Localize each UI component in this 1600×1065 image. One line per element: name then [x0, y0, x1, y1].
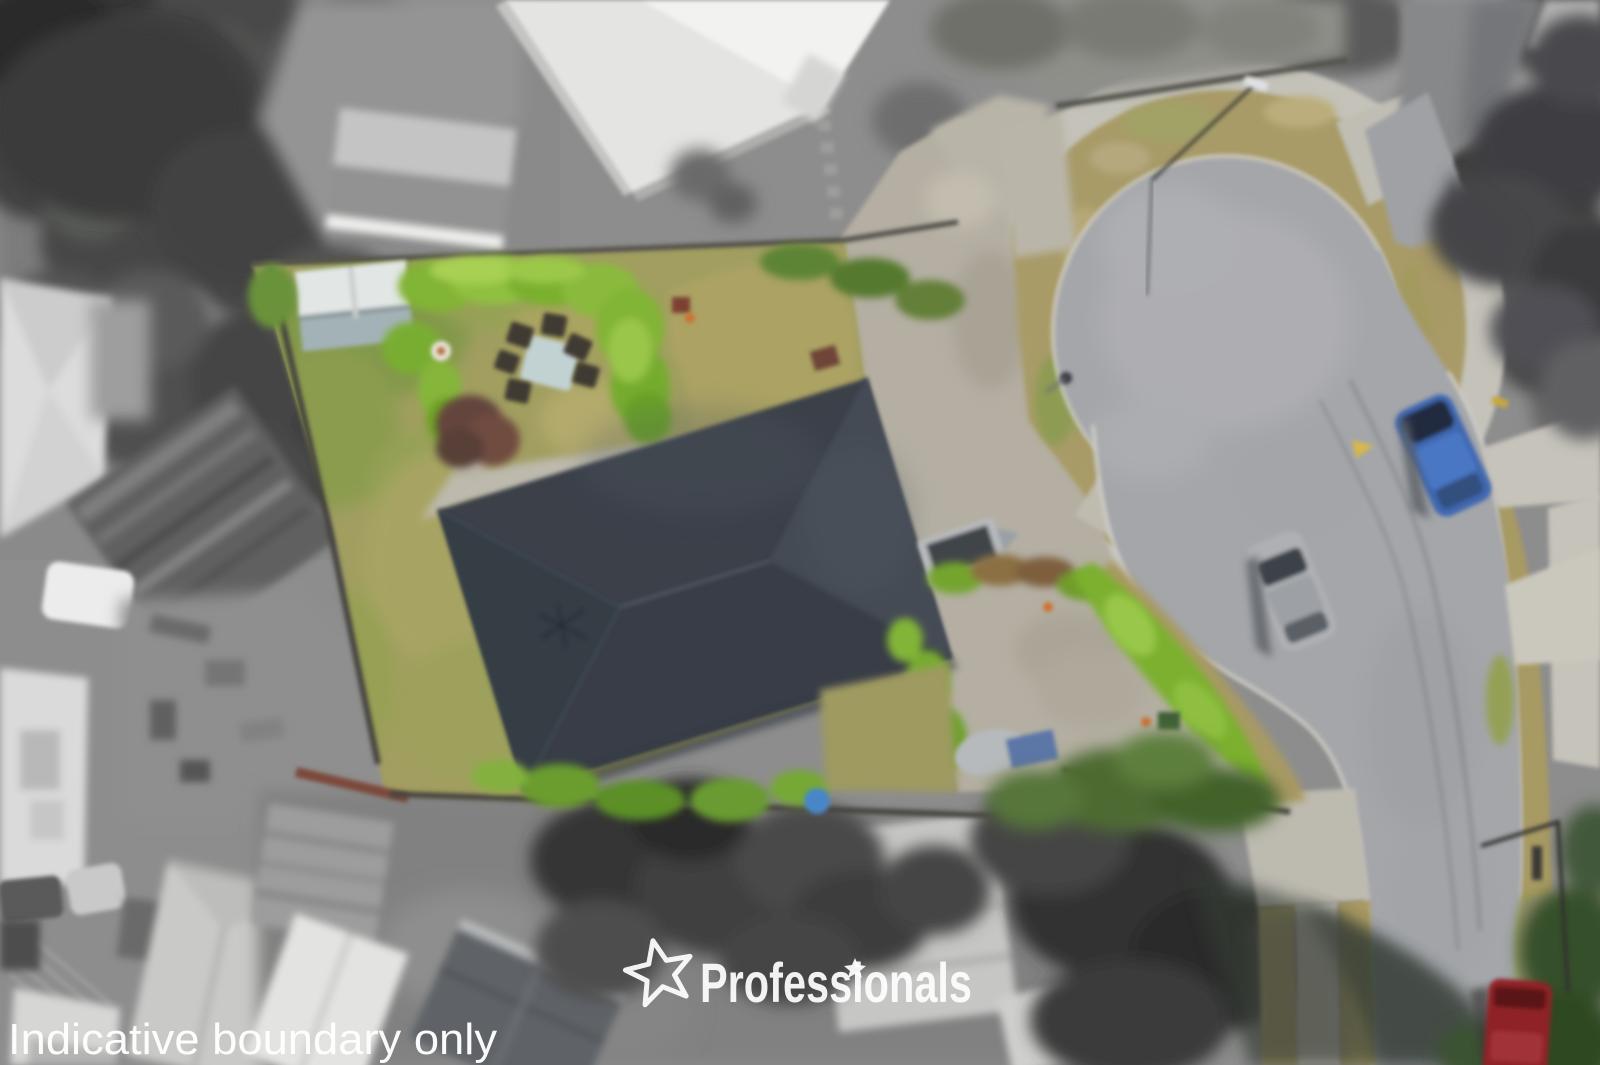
svg-text:Professionals: Professionals: [700, 951, 972, 1014]
svg-text:Indicative boundary only: Indicative boundary only: [8, 1015, 497, 1064]
